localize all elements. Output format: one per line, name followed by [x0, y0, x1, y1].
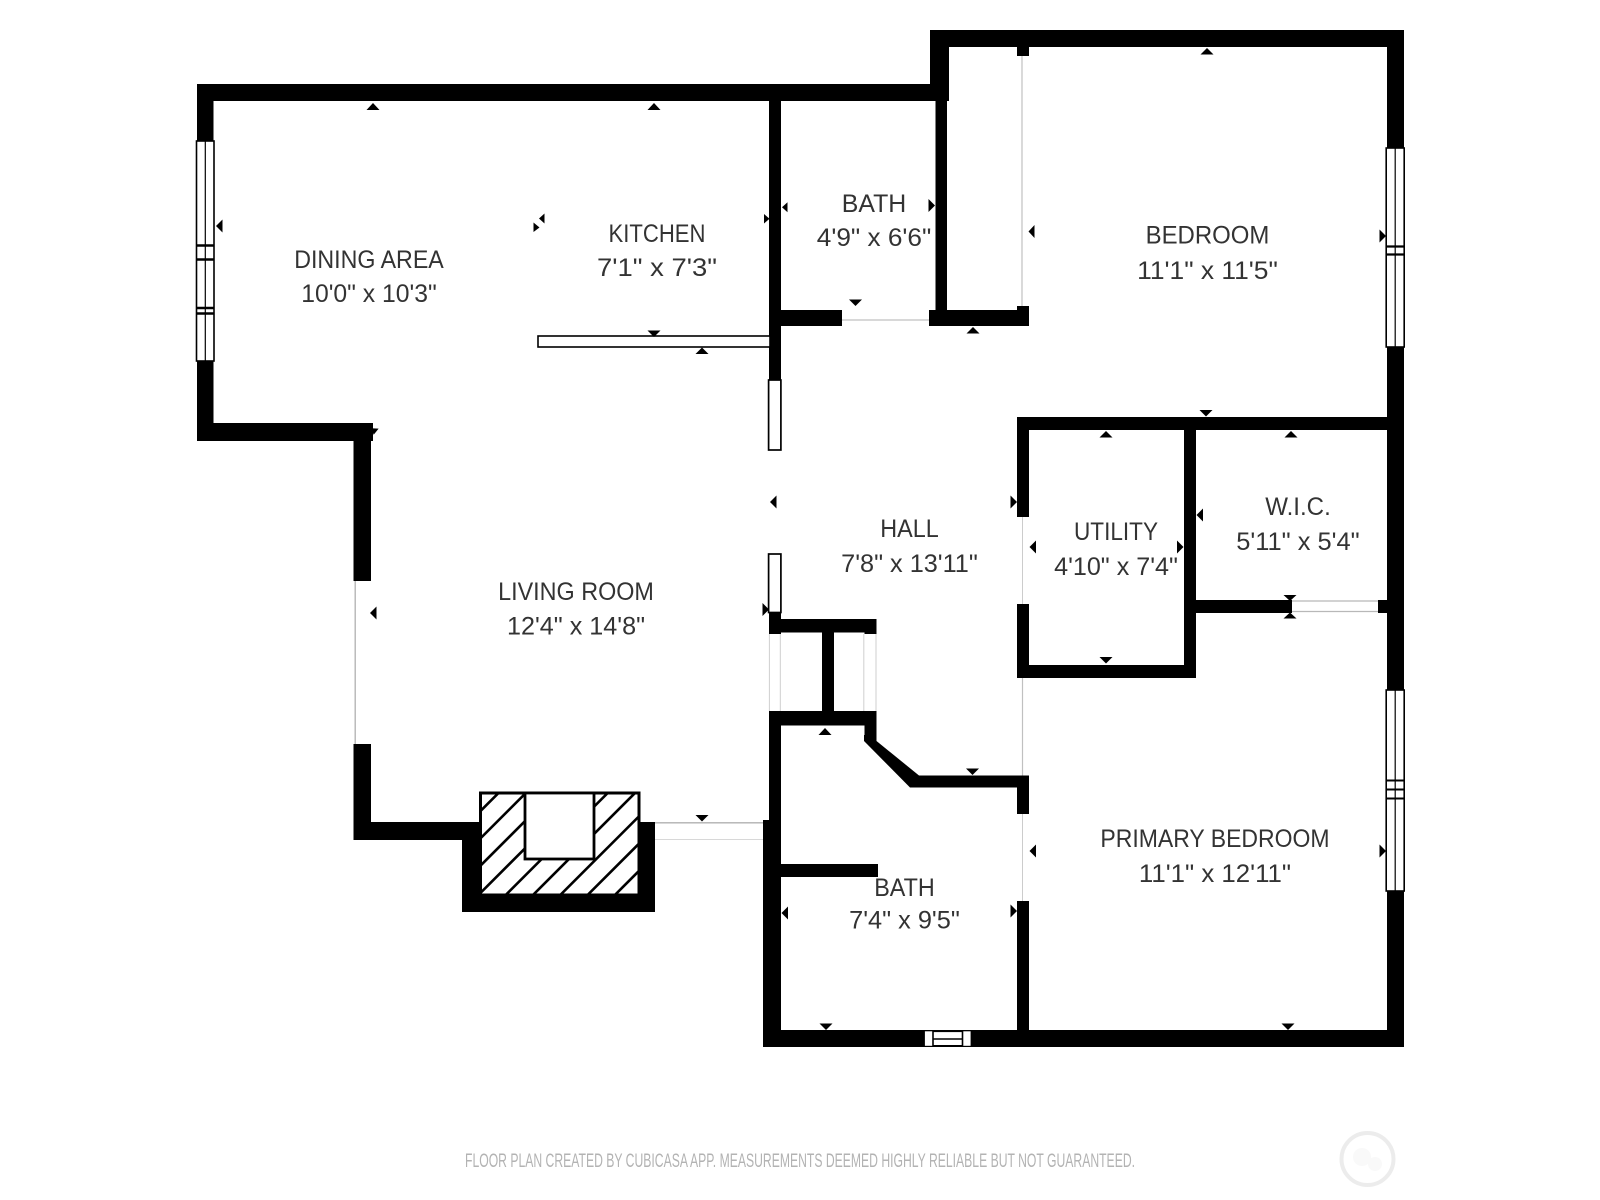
svg-text:PRIMARY BEDROOM: PRIMARY BEDROOM	[1100, 825, 1329, 853]
svg-text:KITCHEN: KITCHEN	[609, 220, 706, 248]
svg-text:BATH: BATH	[842, 190, 907, 218]
svg-text:5'11" x 5'4": 5'11" x 5'4"	[1236, 528, 1359, 556]
svg-text:LIVING ROOM: LIVING ROOM	[498, 578, 654, 606]
svg-text:UTILITY: UTILITY	[1074, 518, 1158, 546]
svg-text:DINING AREA: DINING AREA	[294, 246, 444, 274]
svg-text:7'8" x 13'11": 7'8" x 13'11"	[841, 550, 978, 578]
svg-text:4'9" x 6'6": 4'9" x 6'6"	[817, 224, 932, 252]
svg-text:7'1" x 7'3": 7'1" x 7'3"	[597, 254, 717, 282]
svg-text:12'4" x 14'8": 12'4" x 14'8"	[507, 613, 645, 641]
svg-text:W.I.C.: W.I.C.	[1265, 493, 1331, 521]
svg-text:FLOOR PLAN CREATED BY CUBICASA: FLOOR PLAN CREATED BY CUBICASA APP. MEAS…	[465, 1151, 1135, 1172]
svg-text:10'0" x 10'3": 10'0" x 10'3"	[301, 280, 437, 308]
svg-text:HALL: HALL	[880, 515, 939, 543]
svg-text:7'4" x 9'5": 7'4" x 9'5"	[849, 907, 960, 935]
svg-text:11'1" x 11'5": 11'1" x 11'5"	[1137, 257, 1278, 285]
svg-text:BATH: BATH	[874, 874, 935, 902]
svg-text:11'1" x 12'11": 11'1" x 12'11"	[1139, 860, 1291, 888]
svg-text:4'10" x 7'4": 4'10" x 7'4"	[1054, 553, 1178, 581]
svg-text:BEDROOM: BEDROOM	[1146, 222, 1270, 250]
